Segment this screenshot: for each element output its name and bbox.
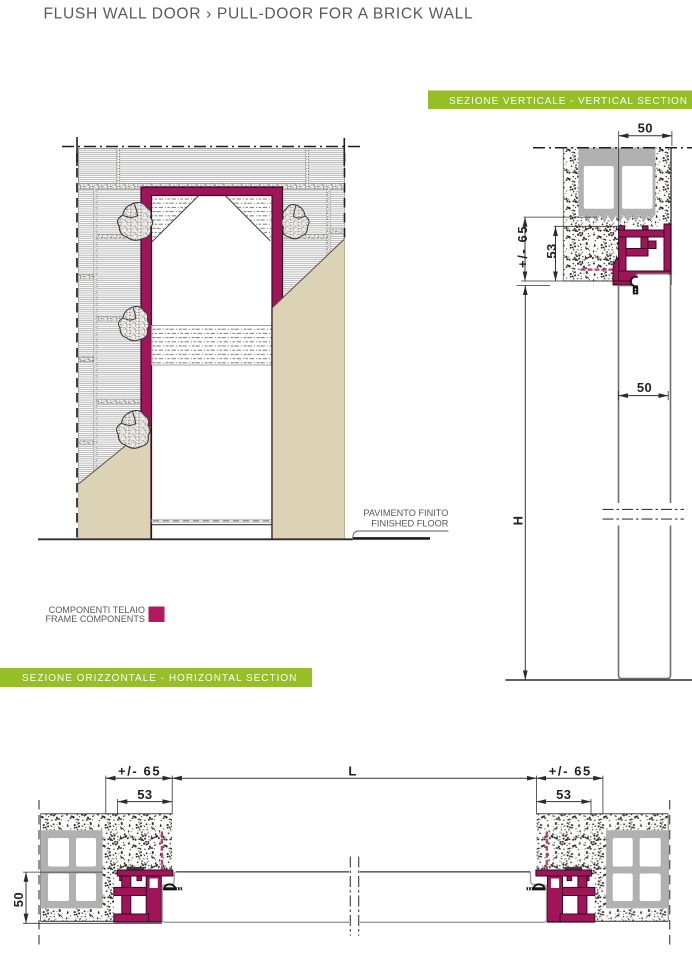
svg-text:SEZIONE ORIZZONTALE - HORIZONT: SEZIONE ORIZZONTALE - HORIZONTAL SECTION [22, 673, 297, 684]
svg-text:FLUSH WALL DOOR › PULL-DOOR FO: FLUSH WALL DOOR › PULL-DOOR FOR A BRICK … [44, 5, 474, 22]
svg-text:+/- 65: +/- 65 [549, 763, 591, 778]
svg-text:L: L [348, 763, 356, 778]
svg-text:FINISHED FLOOR: FINISHED FLOOR [371, 519, 448, 529]
svg-text:+/- 65: +/- 65 [515, 226, 530, 268]
svg-text:53: 53 [137, 787, 152, 802]
svg-text:50: 50 [637, 380, 652, 395]
svg-text:FRAME COMPONENTS: FRAME COMPONENTS [45, 614, 145, 624]
svg-text:PAVIMENTO FINITO: PAVIMENTO FINITO [363, 508, 448, 518]
svg-text:+/- 65: +/- 65 [118, 763, 160, 778]
svg-text:50: 50 [638, 121, 653, 136]
svg-text:53: 53 [556, 787, 571, 802]
svg-text:SEZIONE VERTICALE - VERTICAL S: SEZIONE VERTICALE - VERTICAL SECTION [449, 96, 688, 107]
svg-text:53: 53 [544, 243, 559, 258]
svg-text:50: 50 [11, 892, 26, 907]
svg-text:H: H [511, 516, 526, 526]
